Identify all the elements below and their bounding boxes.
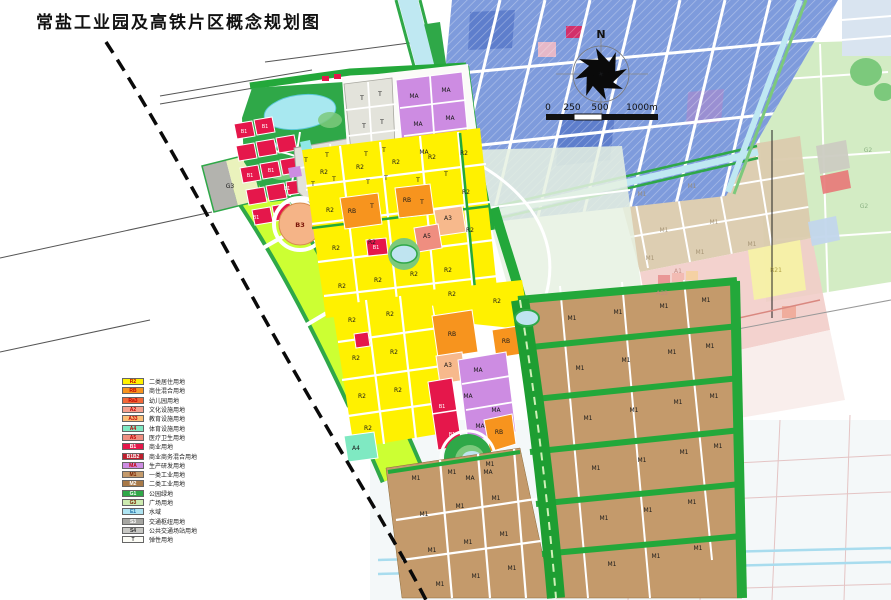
block-label: R2 xyxy=(460,150,468,157)
legend-label: 一类工业用地 xyxy=(149,470,185,479)
legend-label: 商住混合用地 xyxy=(149,386,185,395)
legend-label: 公园绿地 xyxy=(149,489,173,498)
legend-swatch: S4 xyxy=(122,527,144,534)
main-industrial-grid xyxy=(515,280,742,598)
block-label: M1 xyxy=(710,219,719,226)
legend-item: A33教育设施用地 xyxy=(122,414,197,423)
legend-swatch: G3 xyxy=(122,499,144,506)
block-label: M1 xyxy=(622,357,631,364)
block-label: M1 xyxy=(412,475,421,482)
legend-item: RB商住混合用地 xyxy=(122,386,197,395)
block-label: M1 xyxy=(568,315,577,322)
block-label: M1 xyxy=(630,407,639,414)
block-label: R21 xyxy=(770,267,782,274)
legend-swatch: M1 xyxy=(122,471,144,478)
block-label: M1 xyxy=(660,227,669,234)
legend-swatch: T xyxy=(122,536,144,543)
legend-label: 交通枢纽用地 xyxy=(149,517,185,526)
block-label: MA xyxy=(463,393,473,400)
block-label: M1 xyxy=(456,503,465,510)
legend-label: 水域 xyxy=(149,507,161,516)
block-label: M1 xyxy=(420,511,429,518)
legend-swatch: A4 xyxy=(122,425,144,432)
block-label: M1 xyxy=(644,507,653,514)
block-label: M1 xyxy=(448,469,457,476)
block-label: R2 xyxy=(358,393,366,400)
block-label: MA xyxy=(475,423,485,430)
block-label: T xyxy=(379,119,384,126)
legend-label: 二类工业用地 xyxy=(149,479,185,488)
legend-item: M1一类工业用地 xyxy=(122,470,197,479)
block-label: R2 xyxy=(392,159,400,166)
block-label: M1 xyxy=(492,495,501,502)
legend-item: A4体育设施用地 xyxy=(122,423,197,432)
block-label: M1 xyxy=(714,443,723,450)
legend-item: M2二类工业用地 xyxy=(122,479,197,488)
block-label: RB xyxy=(448,331,456,338)
block-label: R2 xyxy=(332,245,340,252)
block-label: M1 xyxy=(674,399,683,406)
golf-green-blob xyxy=(850,58,882,86)
block-label: M1 xyxy=(600,515,609,522)
block-label: MA xyxy=(473,367,483,374)
block-label: T xyxy=(331,176,336,183)
legend-label: 广场用地 xyxy=(149,498,173,507)
block-label: MA xyxy=(413,121,423,128)
block-label: R2 xyxy=(352,355,360,362)
block-label: B1 xyxy=(247,173,254,179)
block-label: M1 xyxy=(688,183,697,190)
svg-text:250: 250 xyxy=(563,103,580,113)
legend-swatch: G1 xyxy=(122,490,144,497)
block-label: T xyxy=(415,177,420,184)
legend-swatch: E1 xyxy=(122,508,144,515)
block-label: B1 xyxy=(268,168,275,174)
block-label: M1 xyxy=(592,465,601,472)
block-label: A33 xyxy=(656,290,668,297)
block-label: M1 xyxy=(702,297,711,304)
legend-item: MA生产研发用地 xyxy=(122,461,197,470)
block-label: M1 xyxy=(748,241,757,248)
block-label: T xyxy=(419,199,424,206)
legend-item: B1商业用地 xyxy=(122,442,197,451)
legend: R2二类居住用地RB商住混合用地Ra3幼儿园用地A2文化设施用地A33教育设施用… xyxy=(122,377,197,544)
block-label: M1 xyxy=(500,531,509,538)
legend-item: G1公园绿地 xyxy=(122,489,197,498)
block-label: M1 xyxy=(508,565,517,572)
map-canvas: 常盐工业园及高铁片区概念规划图 xyxy=(0,0,891,600)
block-label: R2 xyxy=(364,425,372,432)
block-label: T xyxy=(443,171,448,178)
block-label: M1 xyxy=(660,303,669,310)
block-label: M1 xyxy=(710,393,719,400)
legend-swatch: A5 xyxy=(122,434,144,441)
block-label: A4 xyxy=(352,445,360,452)
block-label: T xyxy=(365,179,370,186)
block-label: M1 xyxy=(680,449,689,456)
block-label: R2 xyxy=(444,267,452,274)
block-label: T xyxy=(369,203,374,210)
block-label: R2 xyxy=(356,164,364,171)
legend-label: 商业商务混合用地 xyxy=(149,452,197,461)
block-label: M1 xyxy=(652,553,661,560)
block-label: MA xyxy=(491,407,501,414)
block-label: A5 xyxy=(423,233,431,240)
map-title: 常盐工业园及高铁片区概念规划图 xyxy=(36,8,321,33)
block-label: R2 xyxy=(462,189,470,196)
block-label: MA xyxy=(483,469,493,476)
legend-item: G3广场用地 xyxy=(122,498,197,507)
block-label: M1 xyxy=(638,457,647,464)
block-label: M1 xyxy=(614,309,623,316)
legend-label: 公共交通场站用地 xyxy=(149,526,197,535)
block-label: T xyxy=(383,175,388,182)
block-label: M1 xyxy=(638,191,647,198)
legend-item: T弹性用地 xyxy=(122,535,197,544)
block-label: A3 xyxy=(444,215,452,222)
block-label: T xyxy=(363,151,368,158)
legend-item: R2二类居住用地 xyxy=(122,377,197,386)
block-label: B1 xyxy=(241,129,248,135)
block-label: M1 xyxy=(584,415,593,422)
legend-item: E1水域 xyxy=(122,507,197,516)
block-label: T xyxy=(377,91,382,98)
block-label: T xyxy=(359,95,364,102)
block-label: G2 xyxy=(860,203,869,210)
block-label: M1 xyxy=(694,545,703,552)
svg-text:500: 500 xyxy=(591,103,608,113)
block-label: RB xyxy=(502,338,510,345)
block-label: R2 xyxy=(338,283,346,290)
block-label: R2 xyxy=(493,298,501,305)
block-label: R2 xyxy=(466,227,474,234)
block-label: T xyxy=(310,181,315,188)
block-label: RB xyxy=(348,208,356,215)
legend-label: 弹性用地 xyxy=(149,535,173,544)
block-label: R2 xyxy=(348,317,356,324)
block-label: MA xyxy=(409,93,419,100)
neighborhood-pond xyxy=(391,245,417,263)
block-label: M1 xyxy=(472,573,481,580)
block-label: R2 xyxy=(386,311,394,318)
legend-label: 体育设施用地 xyxy=(149,424,185,433)
block-label: B1 xyxy=(253,215,260,221)
legend-item: S4公共交通场站用地 xyxy=(122,526,197,535)
block-label: RB xyxy=(495,429,503,436)
legend-item: A2文化设施用地 xyxy=(122,405,197,414)
block-label: M1 xyxy=(706,343,715,350)
block-label: R2 xyxy=(320,169,328,176)
block-label: B1 xyxy=(262,124,269,130)
block-label: B1 xyxy=(284,186,291,192)
legend-swatch: Ra3 xyxy=(122,397,144,404)
block-label: M1 xyxy=(576,365,585,372)
legend-swatch: MA xyxy=(122,462,144,469)
legend-item: A5医疗卫生用地 xyxy=(122,433,197,442)
svg-text:0: 0 xyxy=(545,103,551,113)
block-label: M1 xyxy=(428,547,437,554)
block-label: A1 xyxy=(674,268,682,275)
legend-item: B1B2商业商务混合用地 xyxy=(122,451,197,460)
block-label: MA xyxy=(445,115,455,122)
block-label: M1 xyxy=(608,561,617,568)
block-label: RB xyxy=(403,197,411,204)
block-label: T xyxy=(303,157,308,164)
legend-swatch: RB xyxy=(122,387,144,394)
block-label: R2 xyxy=(448,291,456,298)
legend-swatch: B1B2 xyxy=(122,453,144,460)
legend-swatch: R2 xyxy=(122,378,144,385)
block-label: MA xyxy=(465,475,475,482)
block-label: B3 xyxy=(295,221,304,229)
legend-label: 幼儿园用地 xyxy=(149,396,179,405)
block-label: M1 xyxy=(696,249,705,256)
block-label: M1 xyxy=(646,255,655,262)
block-label: M1 xyxy=(436,581,445,588)
block-label: M1 xyxy=(486,461,495,468)
legend-swatch: B1 xyxy=(122,443,144,450)
block-label: A3 xyxy=(444,362,452,369)
block-label: M1 xyxy=(668,349,677,356)
legend-label: 教育设施用地 xyxy=(149,414,185,423)
block-label: R2 xyxy=(410,271,418,278)
legend-swatch: S3 xyxy=(122,518,144,525)
block-label: B1 xyxy=(373,245,380,251)
legend-item: Ra3幼儿园用地 xyxy=(122,396,197,405)
svg-text:1000m: 1000m xyxy=(626,103,658,113)
block-label: MA xyxy=(441,87,451,94)
block-label: M1 xyxy=(688,499,697,506)
legend-swatch: M2 xyxy=(122,480,144,487)
block-label: R2 xyxy=(394,387,402,394)
block-label: T xyxy=(324,152,329,159)
block-label: G2 xyxy=(864,147,873,154)
block-label: G3 xyxy=(226,183,235,190)
legend-label: 商业用地 xyxy=(149,442,173,451)
legend-swatch: A33 xyxy=(122,415,144,422)
block-label: T xyxy=(361,123,366,130)
compass-north-label: N xyxy=(596,28,605,41)
legend-label: 文化设施用地 xyxy=(149,405,185,414)
legend-item: S3交通枢纽用地 xyxy=(122,516,197,525)
block-label: R2 xyxy=(326,207,334,214)
block-label: T xyxy=(381,147,386,154)
block-label: R2 xyxy=(390,349,398,356)
legend-label: 医疗卫生用地 xyxy=(149,433,185,442)
block-label: R2 xyxy=(374,277,382,284)
legend-swatch: A2 xyxy=(122,406,144,413)
block-label: R2 xyxy=(428,154,436,161)
legend-label: 二类居住用地 xyxy=(149,377,185,386)
block-label: B1 xyxy=(449,432,456,438)
legend-label: 生产研发用地 xyxy=(149,461,185,470)
block-label: B1 xyxy=(439,404,446,410)
block-label: M1 xyxy=(464,539,473,546)
